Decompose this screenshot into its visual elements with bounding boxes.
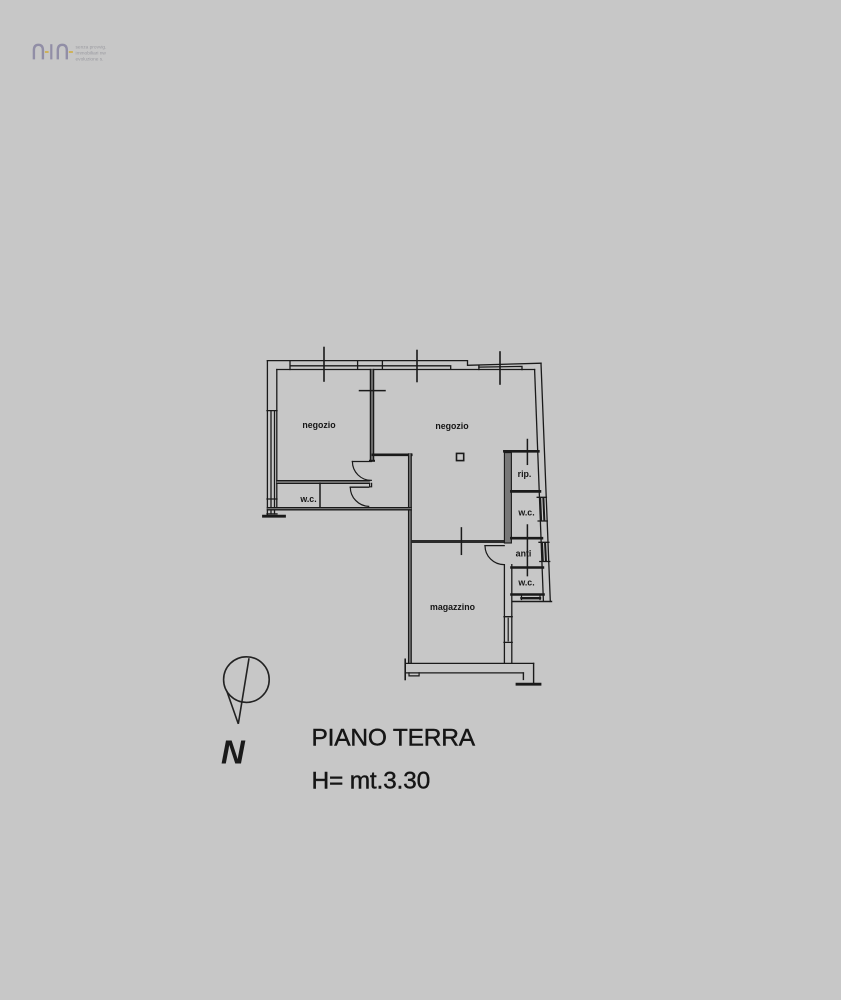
- svg-text:evoluzione s.: evoluzione s.: [76, 56, 104, 62]
- svg-text:H= mt.3.30: H= mt.3.30: [312, 768, 431, 795]
- svg-text:negozio: negozio: [302, 420, 336, 430]
- svg-text:anti: anti: [516, 549, 532, 559]
- svg-text:w.c.: w.c.: [517, 508, 534, 518]
- svg-text:w.c.: w.c.: [517, 578, 534, 588]
- svg-text:PIANO TERRA: PIANO TERRA: [312, 725, 476, 752]
- svg-text:rip.: rip.: [518, 469, 532, 479]
- svg-text:senza provvig.: senza provvig.: [76, 44, 107, 50]
- svg-text:magazzino: magazzino: [430, 602, 476, 612]
- svg-text:w.c.: w.c.: [299, 494, 316, 504]
- svg-text:negozio: negozio: [435, 421, 469, 431]
- svg-text:immobiliari nw: immobiliari nw: [76, 50, 107, 56]
- svg-text:N: N: [221, 734, 246, 771]
